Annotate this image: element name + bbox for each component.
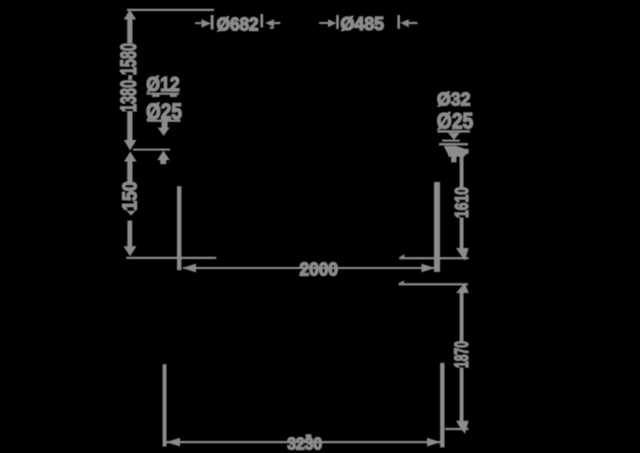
svg-text:Ø25: Ø25 bbox=[437, 109, 474, 134]
svg-text:Ø12: Ø12 bbox=[146, 74, 180, 96]
svg-text:1610: 1610 bbox=[452, 187, 472, 218]
svg-text:1380-1580: 1380-1580 bbox=[116, 43, 141, 112]
svg-text:150: 150 bbox=[120, 181, 142, 211]
svg-text:1870: 1870 bbox=[452, 341, 473, 368]
svg-text:Ø32: Ø32 bbox=[437, 90, 471, 110]
svg-text:2000: 2000 bbox=[300, 259, 339, 279]
svg-text:3230: 3230 bbox=[287, 433, 322, 453]
svg-text:Ø485: Ø485 bbox=[341, 14, 385, 34]
svg-text:Ø25: Ø25 bbox=[146, 99, 182, 124]
svg-text:Ø682: Ø682 bbox=[217, 14, 259, 34]
